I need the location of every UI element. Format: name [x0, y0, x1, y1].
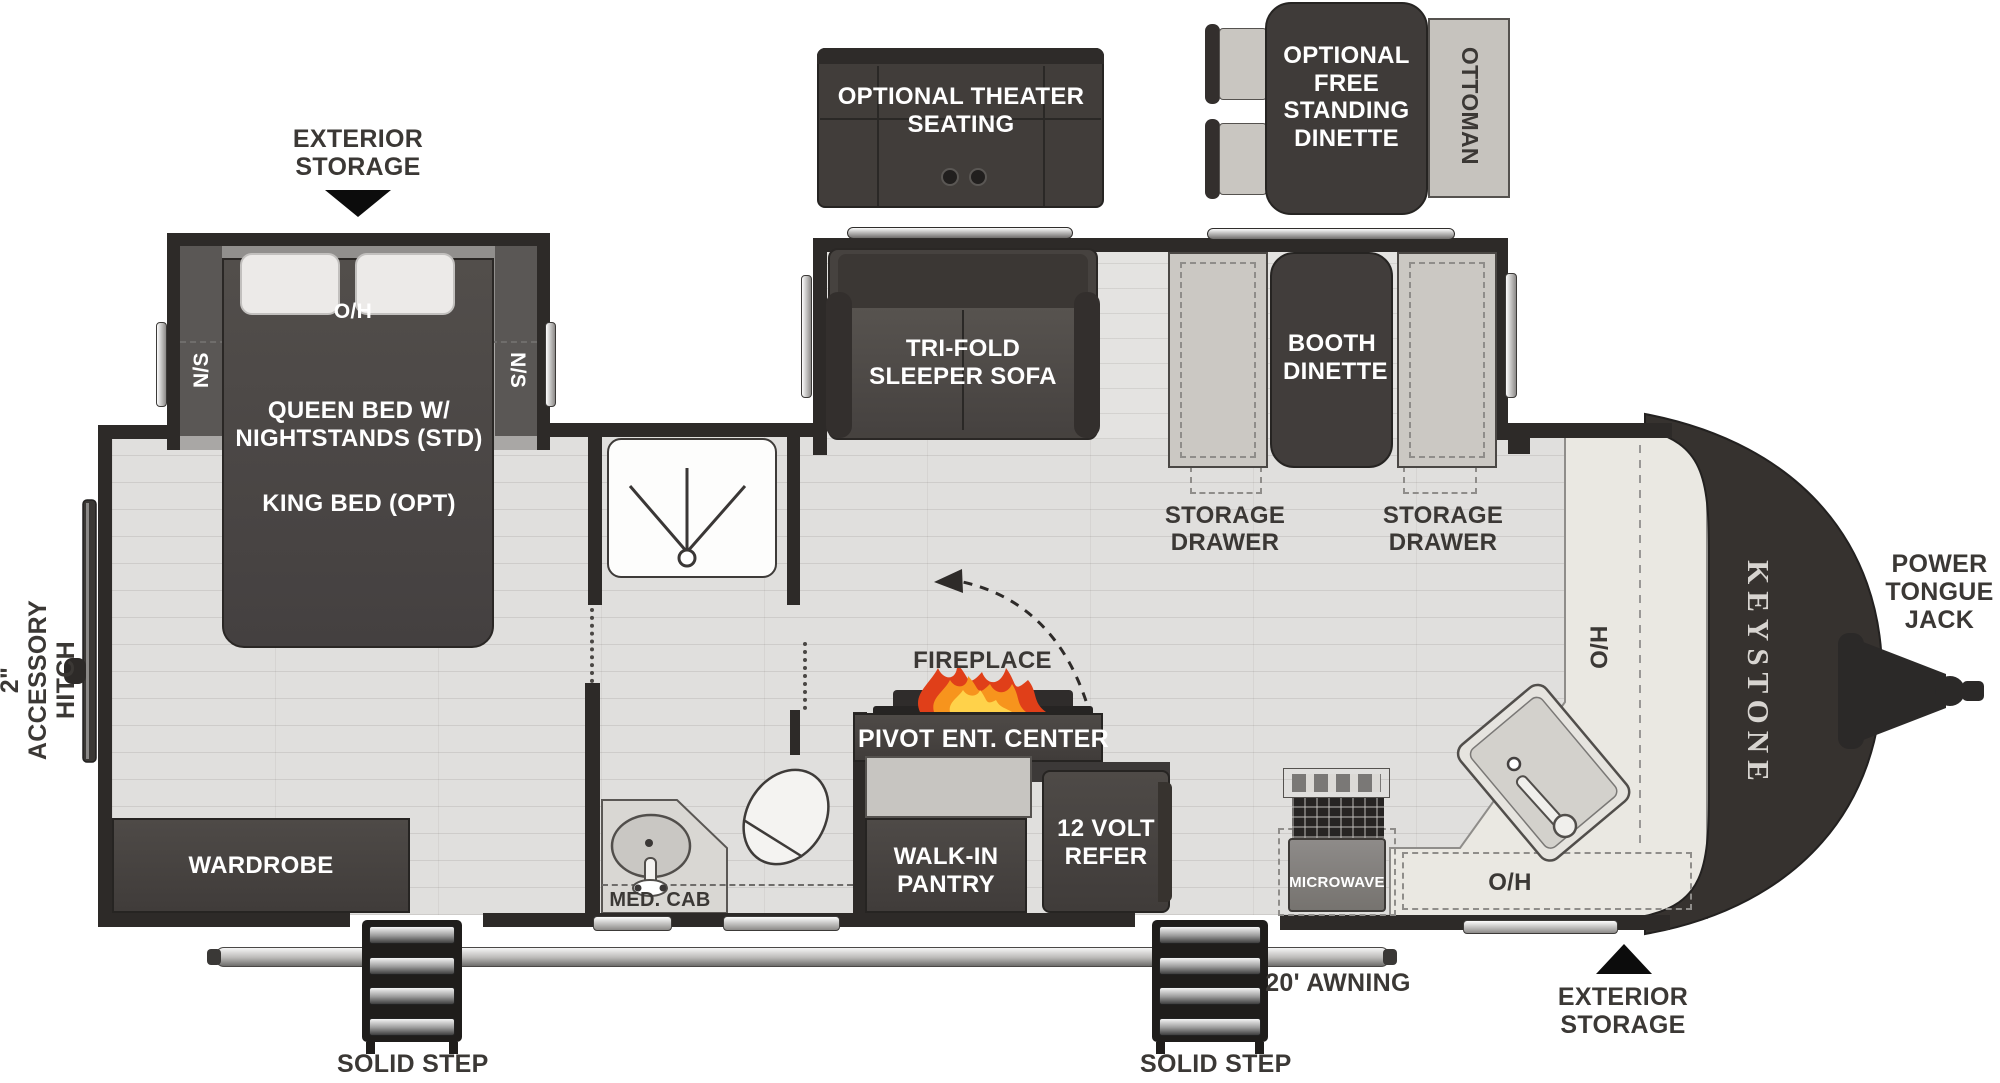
medcab-label: MED. CAB: [604, 889, 716, 911]
solid-step-left-label: SOLID STEP: [337, 1050, 487, 1078]
top-wall-notch: [1508, 438, 1530, 454]
pivot-label: PIVOT ENT. CENTER: [858, 725, 1098, 754]
storage-drawer-right-label: STORAGE DRAWER: [1376, 503, 1510, 557]
pantry-label: WALK-IN PANTRY: [870, 843, 1022, 898]
storage-drawer-outline-left: [1190, 466, 1262, 494]
dinette-chair-seat-1: [1219, 28, 1267, 100]
bed-slide-top-wall: [167, 233, 550, 246]
kitchen-oh-outline: [1402, 852, 1692, 910]
cupholder-right: [969, 168, 987, 186]
exterior-storage-top-label: EXTERIOR STORAGE: [288, 125, 428, 181]
power-tongue-jack-label: POWER TONGUE JACK: [1872, 550, 2000, 634]
slide-grab-bar-1: [847, 227, 1073, 239]
shower-left-wall: [588, 437, 602, 605]
booth-bench-right-cushion: [1409, 262, 1485, 458]
sofa-label: TRI-FOLD SLEEPER SOFA: [862, 335, 1064, 390]
booth-label: BOOTH DINETTE: [1283, 330, 1381, 385]
solid-step-left: [362, 920, 462, 1042]
tongue-jack-icon: [1838, 633, 1984, 749]
refer-label: 12 VOLT REFER: [1047, 815, 1165, 870]
theater-top-strip: [817, 48, 1104, 64]
wardrobe-label: WARDROBE: [130, 852, 392, 880]
exterior-storage-bottom-label: EXTERIOR STORAGE: [1553, 983, 1693, 1039]
top-wall-mid: [550, 423, 827, 437]
bed-oh-label: O/H: [322, 300, 384, 324]
medcab-dash-line: [602, 884, 853, 886]
dinette-chair-seat-2: [1219, 123, 1267, 195]
pocket-door-left: [590, 608, 594, 683]
floorplan-canvas: O/H N/S N/S QUEEN BED W/ NIGHTSTANDS (ST…: [0, 0, 2000, 1083]
storage-drawer-outline-right: [1403, 466, 1477, 494]
ottoman-label: OTTOMAN: [1456, 36, 1482, 176]
solid-step-right-label: SOLID STEP: [1140, 1050, 1290, 1078]
bath-window-1: [593, 916, 672, 931]
awning-label: 20' AWNING: [1258, 969, 1418, 997]
accessory-hitch-label: 2" ACCESSORY HITCH: [0, 585, 80, 775]
bath-window-2: [723, 916, 840, 931]
dinette-chair-back-1: [1205, 24, 1220, 104]
bottom-wall-a: [98, 913, 350, 927]
range-grate: [1292, 798, 1384, 838]
slide-window-left: [801, 275, 812, 398]
exterior-storage-top-arrow: [325, 190, 391, 217]
storage-drawer-left-label: STORAGE DRAWER: [1158, 503, 1292, 557]
kitchen-oh-label: O/H: [1480, 870, 1540, 897]
bed-option-label: KING BED (OPT): [230, 490, 488, 518]
nightstand-right-label: N/S: [505, 340, 529, 400]
slide-grab-bar-2: [1207, 228, 1455, 240]
exterior-storage-bottom-arrow: [1596, 944, 1652, 974]
shower-right-wall: [787, 437, 800, 605]
cooktop: [1283, 768, 1390, 798]
fireplace-label: FIREPLACE: [910, 648, 1055, 675]
bed-slide-window-left: [156, 322, 167, 407]
cupholder-left: [941, 168, 959, 186]
booth-bench-left-cushion: [1180, 262, 1256, 458]
theater-label: OPTIONAL THEATER SEATING: [830, 83, 1092, 138]
bath-left-wall: [585, 683, 600, 913]
bed-slide-window-right: [545, 322, 556, 407]
pantry-counter: [865, 756, 1032, 818]
sofa-arm-right: [1074, 292, 1100, 438]
slide-left-wall: [813, 238, 827, 455]
sofa-arm-left: [826, 292, 852, 438]
front-bottom-window: [1463, 920, 1618, 934]
awning-cap-left: [207, 949, 221, 965]
free-dinette-label: OPTIONAL FREE STANDING DINETTE: [1277, 42, 1416, 152]
keystone-logo: KEYSTONE: [1740, 554, 1776, 794]
bed-standard-label: QUEEN BED W/ NIGHTSTANDS (STD): [230, 397, 488, 452]
pocket-door-right: [803, 642, 807, 710]
rear-wall: [98, 425, 112, 927]
slide-window-right: [1505, 273, 1517, 398]
top-wall-right: [1508, 423, 1672, 438]
top-wall-left: [98, 425, 174, 439]
awning-cap-right: [1383, 949, 1397, 965]
kitchen-ho-label: H/O: [1584, 617, 1611, 677]
solid-step-right: [1152, 920, 1268, 1042]
bath-door-stub: [790, 710, 800, 755]
microwave-label: MICROWAVE: [1289, 874, 1385, 891]
shower-pan: [607, 438, 777, 578]
sofa-backrest: [838, 254, 1088, 308]
bed-slide-left-wall: [167, 233, 180, 450]
dinette-chair-back-2: [1205, 119, 1220, 199]
nightstand-left-label: N/S: [190, 340, 214, 400]
